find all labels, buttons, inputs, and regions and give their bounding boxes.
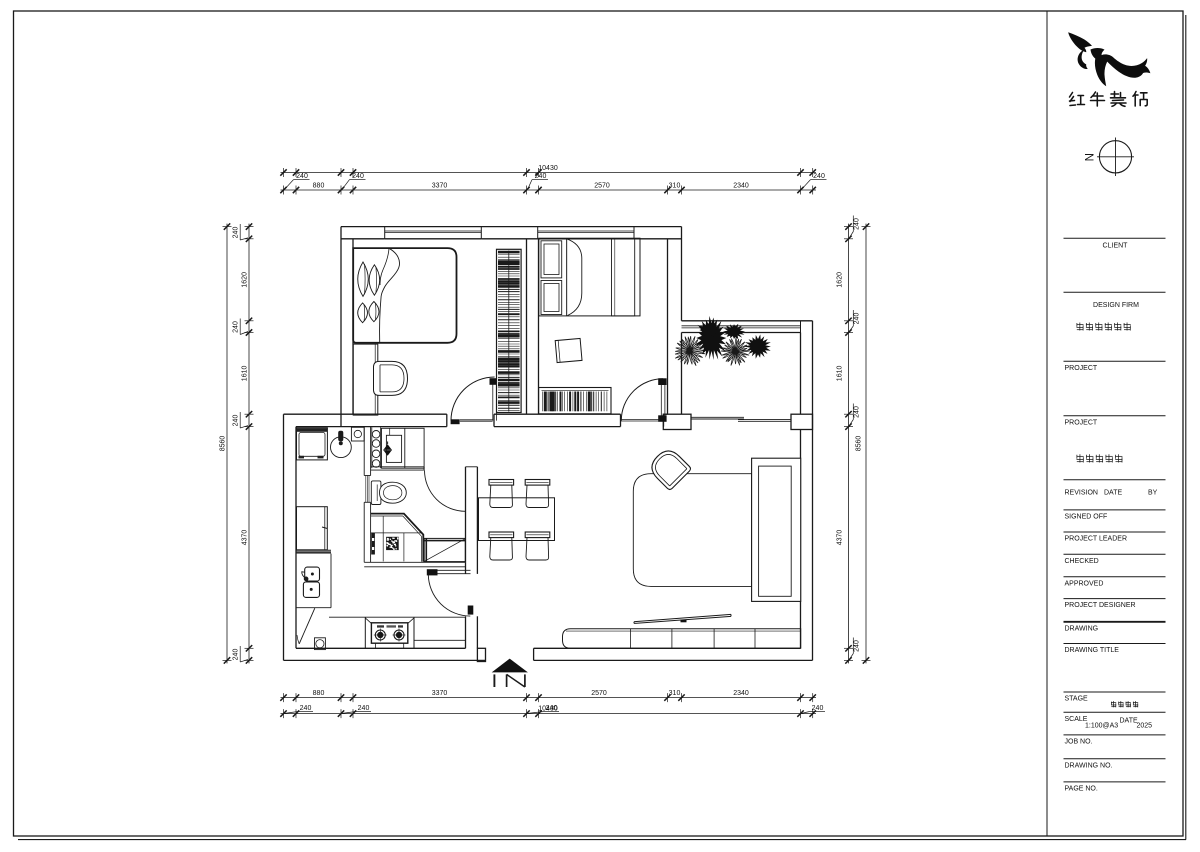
svg-text:BY: BY (1148, 489, 1158, 496)
svg-text:240: 240 (546, 705, 558, 712)
svg-text:DATE: DATE (1120, 717, 1138, 724)
svg-text:2570: 2570 (594, 183, 610, 190)
svg-text:240: 240 (233, 415, 240, 427)
svg-text:240: 240 (853, 218, 860, 230)
svg-text:APPROVED: APPROVED (1065, 580, 1104, 587)
svg-text:DATE: DATE (1104, 489, 1122, 496)
svg-text:240: 240 (296, 173, 308, 180)
svg-text:240: 240 (352, 173, 364, 180)
svg-text:PAGE NO.: PAGE NO. (1065, 786, 1098, 793)
svg-text:4370: 4370 (837, 530, 844, 546)
svg-text:240: 240 (812, 705, 824, 712)
svg-text:DESIGN FIRM: DESIGN FIRM (1093, 302, 1139, 309)
svg-text:PROJECT DESIGNER: PROJECT DESIGNER (1065, 602, 1136, 609)
svg-text:1610: 1610 (837, 366, 844, 382)
svg-text:880: 880 (313, 183, 325, 190)
svg-text:2025: 2025 (1137, 723, 1153, 730)
svg-text:1620: 1620 (241, 272, 248, 288)
svg-text:2570: 2570 (591, 690, 607, 697)
svg-text:JOB NO.: JOB NO. (1065, 739, 1093, 746)
svg-text:DRAWING: DRAWING (1065, 625, 1099, 632)
svg-text:240: 240 (813, 173, 825, 180)
svg-text:1620: 1620 (837, 272, 844, 288)
svg-text:240: 240 (233, 321, 240, 333)
svg-text:STAGE: STAGE (1065, 696, 1089, 703)
svg-text:PROJECT: PROJECT (1065, 419, 1098, 426)
svg-text:310: 310 (669, 690, 681, 697)
svg-text:240: 240 (853, 406, 860, 418)
svg-text:240: 240 (535, 173, 547, 180)
svg-text:3370: 3370 (432, 690, 448, 697)
svg-text:880: 880 (313, 690, 325, 697)
svg-text:1:100@A3: 1:100@A3 (1085, 723, 1118, 730)
svg-text:N: N (1085, 153, 1097, 161)
svg-text:240: 240 (300, 705, 312, 712)
svg-text:8560: 8560 (855, 436, 862, 452)
svg-text:DRAWING TITLE: DRAWING TITLE (1065, 647, 1120, 654)
svg-text:10430: 10430 (538, 165, 558, 172)
svg-text:4370: 4370 (241, 530, 248, 546)
svg-text:240: 240 (853, 640, 860, 652)
svg-text:310: 310 (669, 183, 681, 190)
svg-text:REVISION: REVISION (1065, 489, 1098, 496)
svg-text:PROJECT LEADER: PROJECT LEADER (1065, 536, 1128, 543)
svg-text:2340: 2340 (733, 690, 749, 697)
svg-text:DRAWING NO.: DRAWING NO. (1065, 762, 1113, 769)
svg-text:1610: 1610 (241, 366, 248, 382)
svg-text:240: 240 (233, 649, 240, 661)
svg-text:240: 240 (233, 227, 240, 239)
svg-text:2340: 2340 (733, 183, 749, 190)
svg-text:CHECKED: CHECKED (1065, 558, 1099, 565)
svg-text:8560: 8560 (219, 436, 226, 452)
svg-text:240: 240 (853, 313, 860, 325)
svg-text:CLIENT: CLIENT (1103, 243, 1129, 250)
svg-text:PROJECT: PROJECT (1065, 365, 1098, 372)
svg-text:240: 240 (358, 705, 370, 712)
svg-text:SIGNED OFF: SIGNED OFF (1065, 514, 1108, 521)
svg-text:3370: 3370 (432, 183, 448, 190)
